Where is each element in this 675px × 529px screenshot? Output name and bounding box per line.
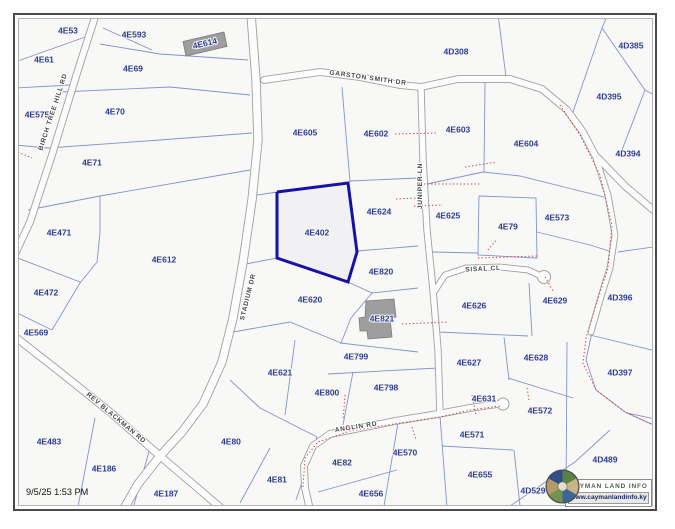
parcel-boundary-line (498, 19, 506, 77)
parcel-boundary-line (602, 28, 652, 98)
parcel-label-4E570: 4E570 (393, 447, 418, 457)
dotted-track-line (527, 388, 529, 400)
cayman-land-info-logo-icon (544, 468, 581, 505)
parcel-label-4E402: 4E402 (305, 227, 330, 237)
parcel-boundary-line (432, 252, 478, 253)
parcel-boundary-line (60, 87, 250, 95)
parcel-label-4E82: 4E82 (332, 457, 352, 467)
parcel-label-4D397: 4D397 (607, 367, 632, 377)
parcel-boundary-line (343, 372, 353, 425)
parcel-boundary-line (328, 368, 438, 374)
parcel-boundary-line (230, 380, 317, 437)
parcel-label-4E71: 4E71 (82, 157, 102, 167)
parcel-boundary-line (622, 90, 645, 150)
dotted-track-line (465, 162, 497, 167)
parcel-boundary-line (590, 335, 652, 352)
parcel-label-4D489: 4D489 (592, 454, 617, 464)
parcel-boundary-line (240, 448, 270, 503)
parcel-label-4E593: 4E593 (122, 29, 147, 39)
parcel-label-4E53: 4E53 (58, 25, 78, 35)
parcel-label-4E69: 4E69 (123, 63, 143, 73)
dotted-track-line (412, 427, 416, 440)
parcel-boundary-line (508, 378, 573, 398)
parcel-boundary-line (348, 282, 418, 293)
road-surface-stadium-dr (122, 19, 258, 505)
road-surface-birch-tree-hill-rd (19, 19, 96, 252)
parcel-label-4E631: 4E631 (472, 393, 497, 403)
parcel-boundary-line (484, 82, 485, 172)
parcel-label-4E572: 4E572 (528, 405, 553, 415)
road-casing-stadium-dr (122, 19, 258, 505)
parcel-label-4E798: 4E798 (374, 382, 399, 392)
parcel-label-4E629: 4E629 (543, 295, 568, 305)
parcel-label-4E612: 4E612 (152, 254, 177, 264)
parcel-label-4E626: 4E626 (462, 300, 487, 310)
parcel-label-4E625: 4E625 (436, 210, 461, 220)
parcel-boundary-line (427, 172, 483, 184)
parcel-boundary-line (318, 470, 397, 492)
parcel-label-4E821: 4E821 (370, 313, 395, 323)
parcel-boundary-line (52, 233, 100, 330)
parcel-boundary-line (504, 337, 509, 380)
parcel-boundary-line (246, 258, 277, 264)
parcel-label-4E604: 4E604 (514, 138, 539, 148)
parcel-label-4D396: 4D396 (607, 292, 632, 302)
cayman-land-info-logo: CAYMAN LAND INFO www.caymanlandinfo.ky (544, 468, 654, 510)
parcel-label-4E624: 4E624 (367, 206, 392, 216)
parcel-label-4E620: 4E620 (298, 294, 323, 304)
parcel-label-4E820: 4E820 (369, 266, 394, 276)
parcel-label-4E628: 4E628 (524, 352, 549, 362)
parcel-boundary-line (233, 322, 341, 343)
parcel-boundary-line (440, 416, 447, 505)
parcel-label-4E569: 4E569 (24, 327, 49, 337)
parcel-boundary-line (19, 257, 80, 282)
parcel-boundary-line (483, 172, 608, 198)
parcel-label-4E603: 4E603 (446, 124, 471, 134)
timestamp: 9/5/25 1:53 PM (26, 487, 88, 497)
parcel-boundary-line (537, 232, 612, 252)
parcel-label-4E61: 4E61 (34, 54, 54, 64)
parcel-boundary-line (442, 446, 513, 450)
parcel-label-4E483: 4E483 (37, 436, 62, 446)
road-surface-garston-south-branch (591, 155, 615, 332)
parcel-label-4E70: 4E70 (105, 106, 125, 116)
parcel-label-4E80: 4E80 (221, 436, 241, 446)
parcel-label-4E575: 4E575 (25, 109, 50, 119)
parcel-boundary-line (586, 332, 652, 427)
parcel-label-4D385: 4D385 (618, 40, 643, 50)
parcel-label-4E605: 4E605 (293, 127, 318, 137)
parcel-label-4E602: 4E602 (364, 128, 389, 138)
parcel-label-4E800: 4E800 (315, 387, 340, 397)
parcel-boundary-line (514, 450, 520, 505)
parcel-boundary-line (342, 87, 350, 182)
road-label-sisal-cl: SISAL CL (465, 265, 501, 274)
parcel-label-4E472: 4E472 (34, 287, 59, 297)
parcel-label-4E571: 4E571 (460, 429, 485, 439)
map-page: 4E534E5934E6144D3084D3854E614E694D3954E5… (0, 0, 675, 529)
dotted-track-line (488, 239, 497, 250)
parcel-label-4D529: 4D529 (520, 485, 545, 495)
parcel-label-4D394: 4D394 (615, 148, 640, 158)
parcel-boundary-line (100, 170, 250, 196)
parcel-label-4E79: 4E79 (498, 221, 518, 231)
parcel-label-4E627: 4E627 (457, 357, 482, 367)
parcel-boundary-line (618, 246, 652, 252)
parcel-boundary-line (350, 178, 418, 181)
road-label-rev-blackman-rd: REV BLACKMAN RD (85, 391, 147, 445)
parcel-label-4E656: 4E656 (359, 488, 384, 498)
map-canvas[interactable]: 4E534E5934E6144D3084D3854E614E694D3954E5… (19, 19, 652, 505)
parcel-boundary-line (438, 332, 528, 336)
parcel-label-4E186: 4E186 (92, 463, 117, 473)
parcel-boundary-line (602, 19, 608, 28)
parcel-label-4E471: 4E471 (47, 227, 72, 237)
parcel-label-4D395: 4D395 (596, 91, 621, 101)
parcel-boundary-line (383, 423, 398, 505)
dotted-track-line (402, 322, 448, 324)
dotted-track-line (19, 152, 32, 158)
dotted-track-line (396, 198, 417, 199)
parcel-label-4E655: 4E655 (468, 469, 493, 479)
parcel-label-4E621: 4E621 (268, 367, 293, 377)
road-surface-juniper-ln (421, 88, 440, 414)
dotted-track-line (395, 133, 437, 134)
parcel-label-4E573: 4E573 (545, 212, 570, 222)
parcel-label-4E81: 4E81 (267, 474, 287, 484)
road-label-juniper-ln: JUNIPER LN (417, 163, 424, 209)
parcel-label-4D308: 4D308 (443, 46, 468, 56)
parcel-label-4E799: 4E799 (344, 351, 369, 361)
parcel-boundary-line (529, 283, 532, 336)
parcel-boundary-line (357, 246, 418, 251)
parcel-boundary-line (285, 340, 295, 415)
parcel-label-4E187: 4E187 (154, 488, 179, 498)
parcel-boundary-line (48, 133, 252, 148)
